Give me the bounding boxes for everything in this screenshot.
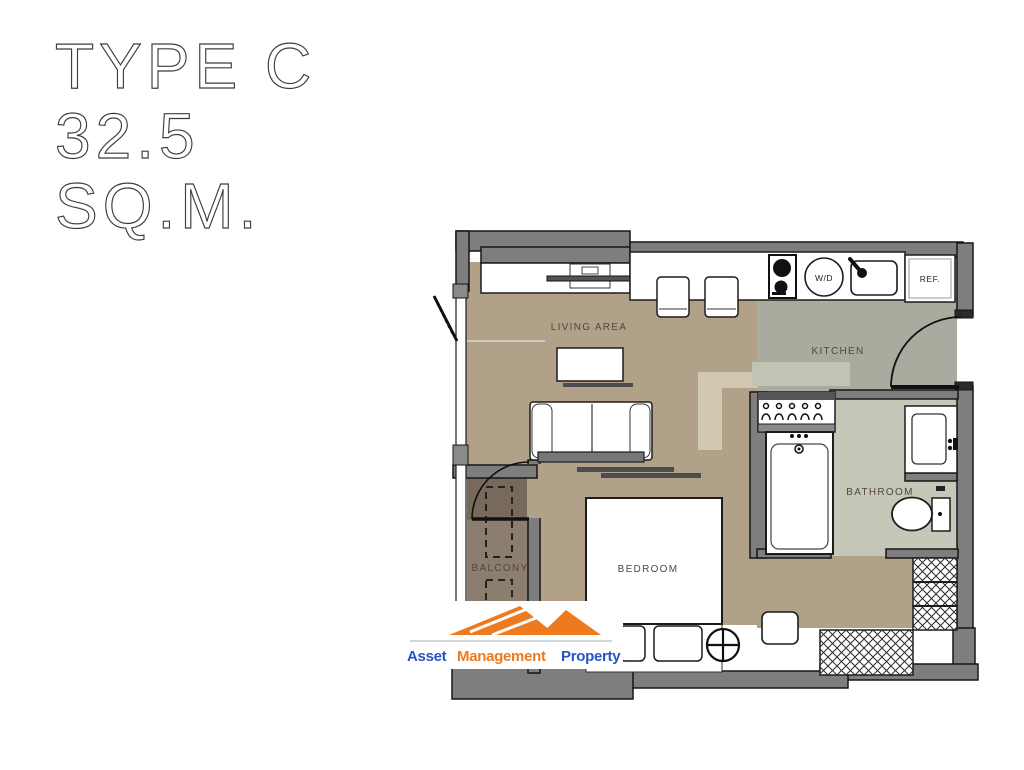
toilet-bowl (892, 498, 932, 531)
balcony-label: BALCONY (472, 563, 529, 574)
fridge-label: REF. (920, 274, 940, 284)
sofa-shadow-2 (601, 473, 701, 478)
fridge-icon: REF. (905, 255, 955, 302)
wardrobe-south-hatch (820, 630, 913, 675)
wall-right-upper (957, 243, 973, 316)
pillow-1 (620, 626, 645, 661)
bathtub-inner (771, 444, 828, 549)
floor-highlight-living-h (698, 372, 758, 388)
nightstand (762, 612, 798, 644)
washer-dryer-label: W/D (815, 273, 833, 283)
wall-bath-south-right (886, 549, 958, 558)
sofa-back (538, 452, 644, 462)
ceiling-fan-icon (707, 629, 739, 661)
open-window-leaf-icon (434, 296, 457, 341)
logo-word-management: Management (457, 648, 546, 665)
wall-bath-north (830, 390, 958, 399)
floor-highlight-kitchen (752, 362, 850, 386)
logo-word-property: Property (561, 648, 621, 665)
kitchen-sink-icon (850, 259, 897, 295)
logo-word-asset: Asset (407, 648, 447, 665)
floorplan-page: TYPE C 32.5 SQ.M. (0, 0, 1024, 770)
coffee-table-top (557, 348, 623, 381)
vanity-basin (912, 414, 946, 464)
unit-area-text: 32.5 (55, 100, 200, 172)
bedroom-label: BEDROOM (618, 564, 679, 575)
sofa-arm-right (630, 404, 650, 458)
sofa-arm-left (532, 404, 552, 458)
coffee-table-shadow (563, 383, 633, 387)
wall-under-vanity (905, 473, 957, 481)
unit-title: TYPE C 32.5 SQ.M. (55, 30, 316, 242)
coffee-table (557, 348, 633, 387)
wardrobe-east-hatch (913, 558, 957, 630)
toilet-flush-dot (938, 512, 942, 516)
vanity-sink (905, 406, 958, 473)
living-area-label: LIVING AREA (551, 322, 628, 333)
wall-top-left-inner (481, 247, 630, 263)
floorplan-canvas: TYPE C 32.5 SQ.M. (0, 0, 1024, 770)
stool-2 (705, 277, 738, 317)
rack-top-rail (758, 392, 835, 400)
bathroom-label: BATHROOM (846, 487, 913, 498)
sofa-shadow-1 (577, 467, 674, 472)
towel-rack (758, 392, 835, 432)
unit-unit-text: SQ.M. (55, 170, 261, 242)
bathtub (766, 432, 833, 554)
tv-console (481, 263, 632, 293)
stove-icon (769, 255, 796, 298)
unit-type-text: TYPE C (55, 30, 316, 102)
paper-holder-icon (936, 486, 945, 491)
washer-dryer-icon: W/D (805, 258, 843, 296)
kitchen-label: KITCHEN (812, 346, 865, 357)
stool-1 (657, 277, 689, 317)
wall-left-corner (456, 231, 469, 291)
pillow-2 (654, 626, 702, 661)
media-unit-inner (582, 267, 598, 274)
agency-logo: Asset Management Property (399, 601, 623, 669)
tv-screen-icon (547, 276, 632, 281)
wall-right-lower (957, 386, 973, 632)
rack-shelf (758, 424, 835, 432)
